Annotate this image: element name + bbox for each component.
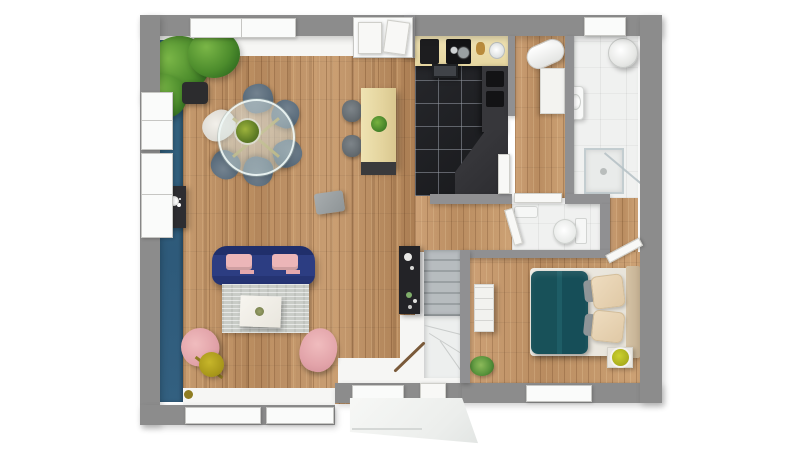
entry-plant — [470, 356, 494, 376]
potted-plant-pot — [182, 82, 208, 104]
extractor-hood — [432, 64, 458, 78]
porch-slab — [346, 398, 478, 444]
window-top-living — [190, 18, 296, 38]
sofa-cushion-pink-1 — [226, 254, 252, 270]
wall-wc-right — [600, 204, 610, 250]
window-bedroom — [526, 385, 592, 402]
floor-lamp-base — [184, 390, 193, 399]
floor-lamp-shade — [199, 352, 224, 377]
hall-door — [514, 193, 562, 203]
dark-counter-basin-1 — [486, 71, 504, 87]
kitchen-island-base — [361, 162, 396, 175]
wall-kitchen-hall — [508, 36, 515, 116]
island-plant — [371, 116, 387, 132]
table-centerpiece-plant — [236, 120, 259, 143]
bed-pillow-beige-2 — [590, 309, 625, 343]
bed-headboard — [626, 266, 640, 358]
hall-cabinet — [540, 68, 565, 114]
kitchen-door — [498, 154, 510, 194]
floor-plan-render — [0, 0, 800, 450]
coffee-table-decor — [255, 307, 264, 316]
nightstand-lamp — [612, 349, 629, 366]
window-left-1 — [141, 92, 173, 150]
wall-kitchen-bottom — [430, 194, 512, 204]
wall-bedroom-top — [460, 250, 610, 258]
wall-stairwell — [460, 250, 470, 383]
dark-counter-basin-2 — [486, 91, 504, 107]
bedroom-dresser — [474, 284, 494, 332]
stairs-upper-flight — [424, 250, 462, 316]
wc-hand-basin — [514, 206, 538, 218]
shelf-decor-dots — [404, 253, 412, 261]
wall-right — [640, 15, 662, 403]
window-sill-strip-bottom — [183, 388, 335, 405]
side-table-small — [314, 190, 346, 215]
porch-step-edge — [352, 428, 422, 430]
bed-blanket-teal — [531, 271, 588, 354]
terrace-door-pane — [358, 22, 382, 54]
cooktop — [446, 39, 471, 64]
window-bottom-1 — [185, 407, 261, 424]
water-heater-bath — [608, 38, 638, 68]
window-left-2 — [141, 153, 173, 238]
bar-stool-2 — [342, 135, 362, 157]
sofa-cushion-pink-2 — [272, 254, 298, 270]
window-sill-strip-entry — [338, 358, 402, 383]
shower-drain — [600, 168, 607, 175]
wall-hall-bath — [565, 36, 574, 198]
kitchen-fridge-top — [420, 39, 439, 64]
toilet-bowl — [553, 219, 577, 244]
bar-stool-1 — [342, 100, 362, 122]
bed-pillow-beige-1 — [590, 273, 626, 310]
window-bottom-2 — [266, 407, 334, 424]
corridor-floor — [415, 196, 512, 252]
kitchen-sink — [489, 42, 505, 59]
counter-jar — [476, 42, 485, 55]
wall-wc-top — [565, 194, 610, 204]
window-bathroom-top — [584, 17, 626, 36]
terrace-door-pane-ajar — [383, 20, 410, 56]
